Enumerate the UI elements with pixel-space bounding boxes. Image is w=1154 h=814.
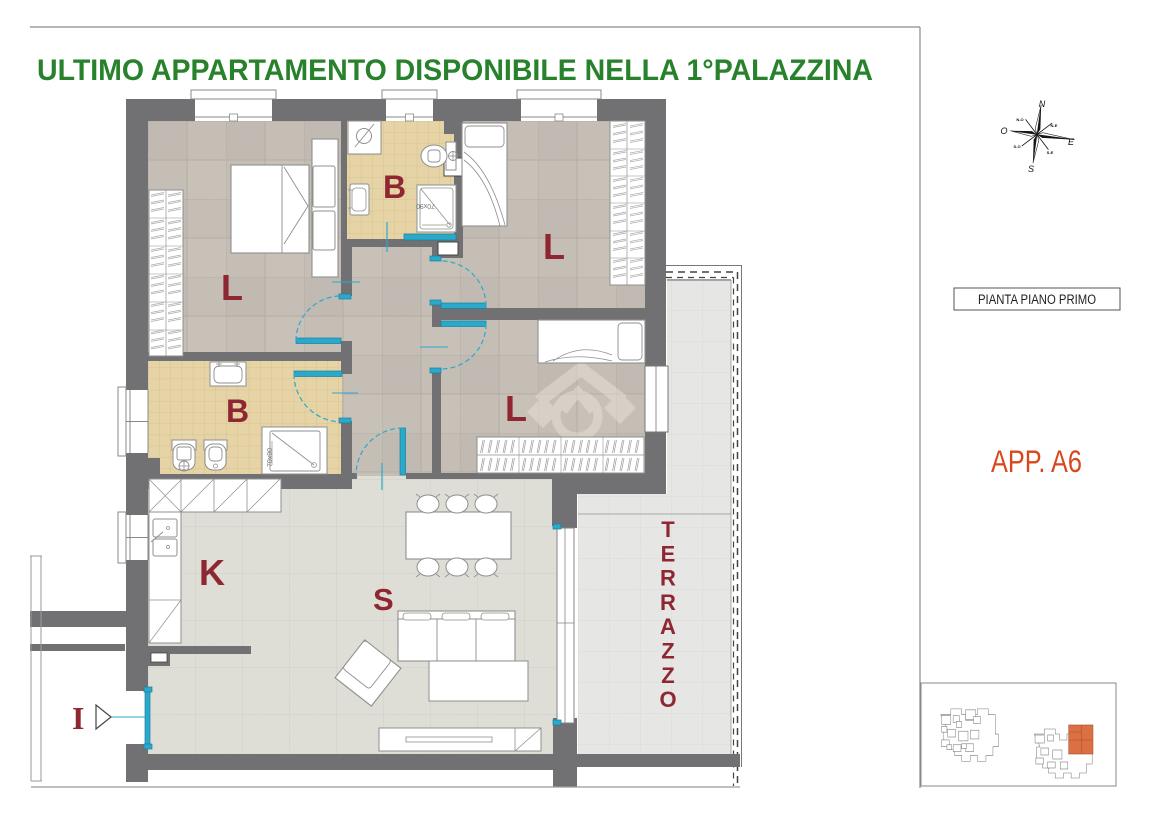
svg-text:N: N <box>1039 99 1046 109</box>
svg-text:B: B <box>383 169 406 205</box>
svg-text:N-E: N-E <box>1051 123 1058 128</box>
svg-text:S-O: S-O <box>1013 144 1020 149</box>
svg-text:N-O: N-O <box>1016 117 1023 122</box>
svg-text:70x90: 70x90 <box>267 448 274 467</box>
svg-text:B: B <box>226 393 249 429</box>
svg-text:R: R <box>660 590 676 615</box>
svg-text:E: E <box>661 541 676 566</box>
svg-text:S-E: S-E <box>1047 150 1054 155</box>
svg-text:S: S <box>1028 164 1034 174</box>
svg-text:T: T <box>661 517 675 542</box>
svg-text:L: L <box>543 226 565 267</box>
svg-text:L: L <box>221 267 243 308</box>
svg-text:L: L <box>505 388 527 429</box>
svg-text:ULTIMO APPARTAMENTO DISPONIBIL: ULTIMO APPARTAMENTO DISPONIBILE NELLA 1°… <box>37 54 873 87</box>
svg-text:A: A <box>660 614 676 639</box>
svg-text:R: R <box>660 566 676 591</box>
svg-text:O: O <box>1000 126 1007 136</box>
svg-text:PIANTA PIANO PRIMO: PIANTA PIANO PRIMO <box>978 292 1096 307</box>
svg-text:Z: Z <box>661 639 674 664</box>
svg-text:70x90: 70x90 <box>416 202 435 209</box>
svg-text:APP. A6: APP. A6 <box>991 443 1082 479</box>
svg-text:Z: Z <box>661 663 674 688</box>
svg-text:K: K <box>199 552 225 593</box>
svg-text:O: O <box>659 687 676 712</box>
svg-text:I: I <box>72 700 84 736</box>
svg-text:S: S <box>373 582 394 617</box>
svg-text:E: E <box>1068 137 1075 147</box>
